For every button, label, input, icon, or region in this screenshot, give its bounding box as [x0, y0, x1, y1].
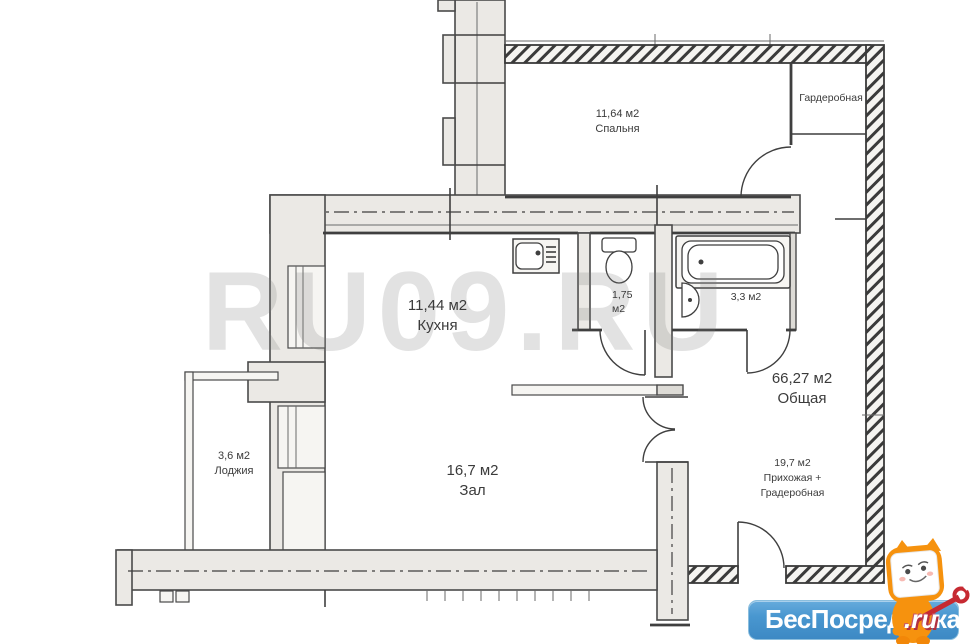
room-name: Спальня	[540, 122, 695, 137]
bedroom-wardrobe-door	[741, 147, 791, 197]
room-label-kitchen: 11,44 м2 Кухня	[360, 296, 515, 336]
room-area: 11,64 м2	[540, 107, 695, 122]
room-area: 19,7 м2	[720, 456, 865, 471]
room-area: 1,75	[612, 289, 656, 303]
kitchen-hall-partition	[512, 385, 683, 395]
room-area-unit: м2	[612, 303, 656, 317]
room-area: 16,7 м2	[395, 461, 550, 481]
bedroom-north-hatched-wall	[505, 34, 884, 63]
hall-double-door	[643, 397, 688, 462]
south-wall-band	[116, 550, 657, 607]
room-label-wardrobe: Гардеробная	[794, 92, 868, 106]
room-name: Зал	[395, 481, 550, 501]
room-area: 11,44 м2	[360, 296, 515, 316]
site-logo[interactable]: БесПосредника	[747, 538, 970, 644]
room-name: Градеробная	[720, 486, 865, 501]
room-area: 3,6 м2	[194, 449, 274, 464]
room-label-loggia: 3,6 м2 Лоджия	[194, 449, 274, 478]
room-name: Общая	[722, 389, 882, 409]
room-label-bedroom: 11,64 м2 Спальня	[540, 107, 695, 136]
room-name: Прихожая +	[720, 471, 865, 486]
bathroom-door	[747, 330, 790, 373]
floorplan-page: .wall{fill:#ebe9e5;stroke:#4a4a4a;stroke…	[0, 0, 970, 644]
hall-entry-wall	[650, 462, 690, 625]
room-label-bathroom: 3,3 м2	[710, 291, 782, 305]
room-area: 3,3 м2	[710, 291, 782, 305]
east-hatched-wall	[866, 45, 884, 568]
room-name: Гардеробная	[794, 92, 868, 106]
logo-domain-suffix: .ru	[904, 604, 937, 635]
west-exterior-wall-column	[438, 0, 505, 197]
label-total-area: 66,27 м2 Общая	[722, 369, 882, 409]
room-label-entry: 19,7 м2 Прихожая + Градеробная	[720, 456, 865, 502]
room-label-wc: 1,75 м2	[612, 289, 656, 317]
room-name: Кухня	[360, 316, 515, 336]
room-name: Лоджия	[194, 464, 274, 479]
room-label-hall: 16,7 м2 Зал	[395, 461, 550, 501]
room-area: 66,27 м2	[722, 369, 882, 389]
